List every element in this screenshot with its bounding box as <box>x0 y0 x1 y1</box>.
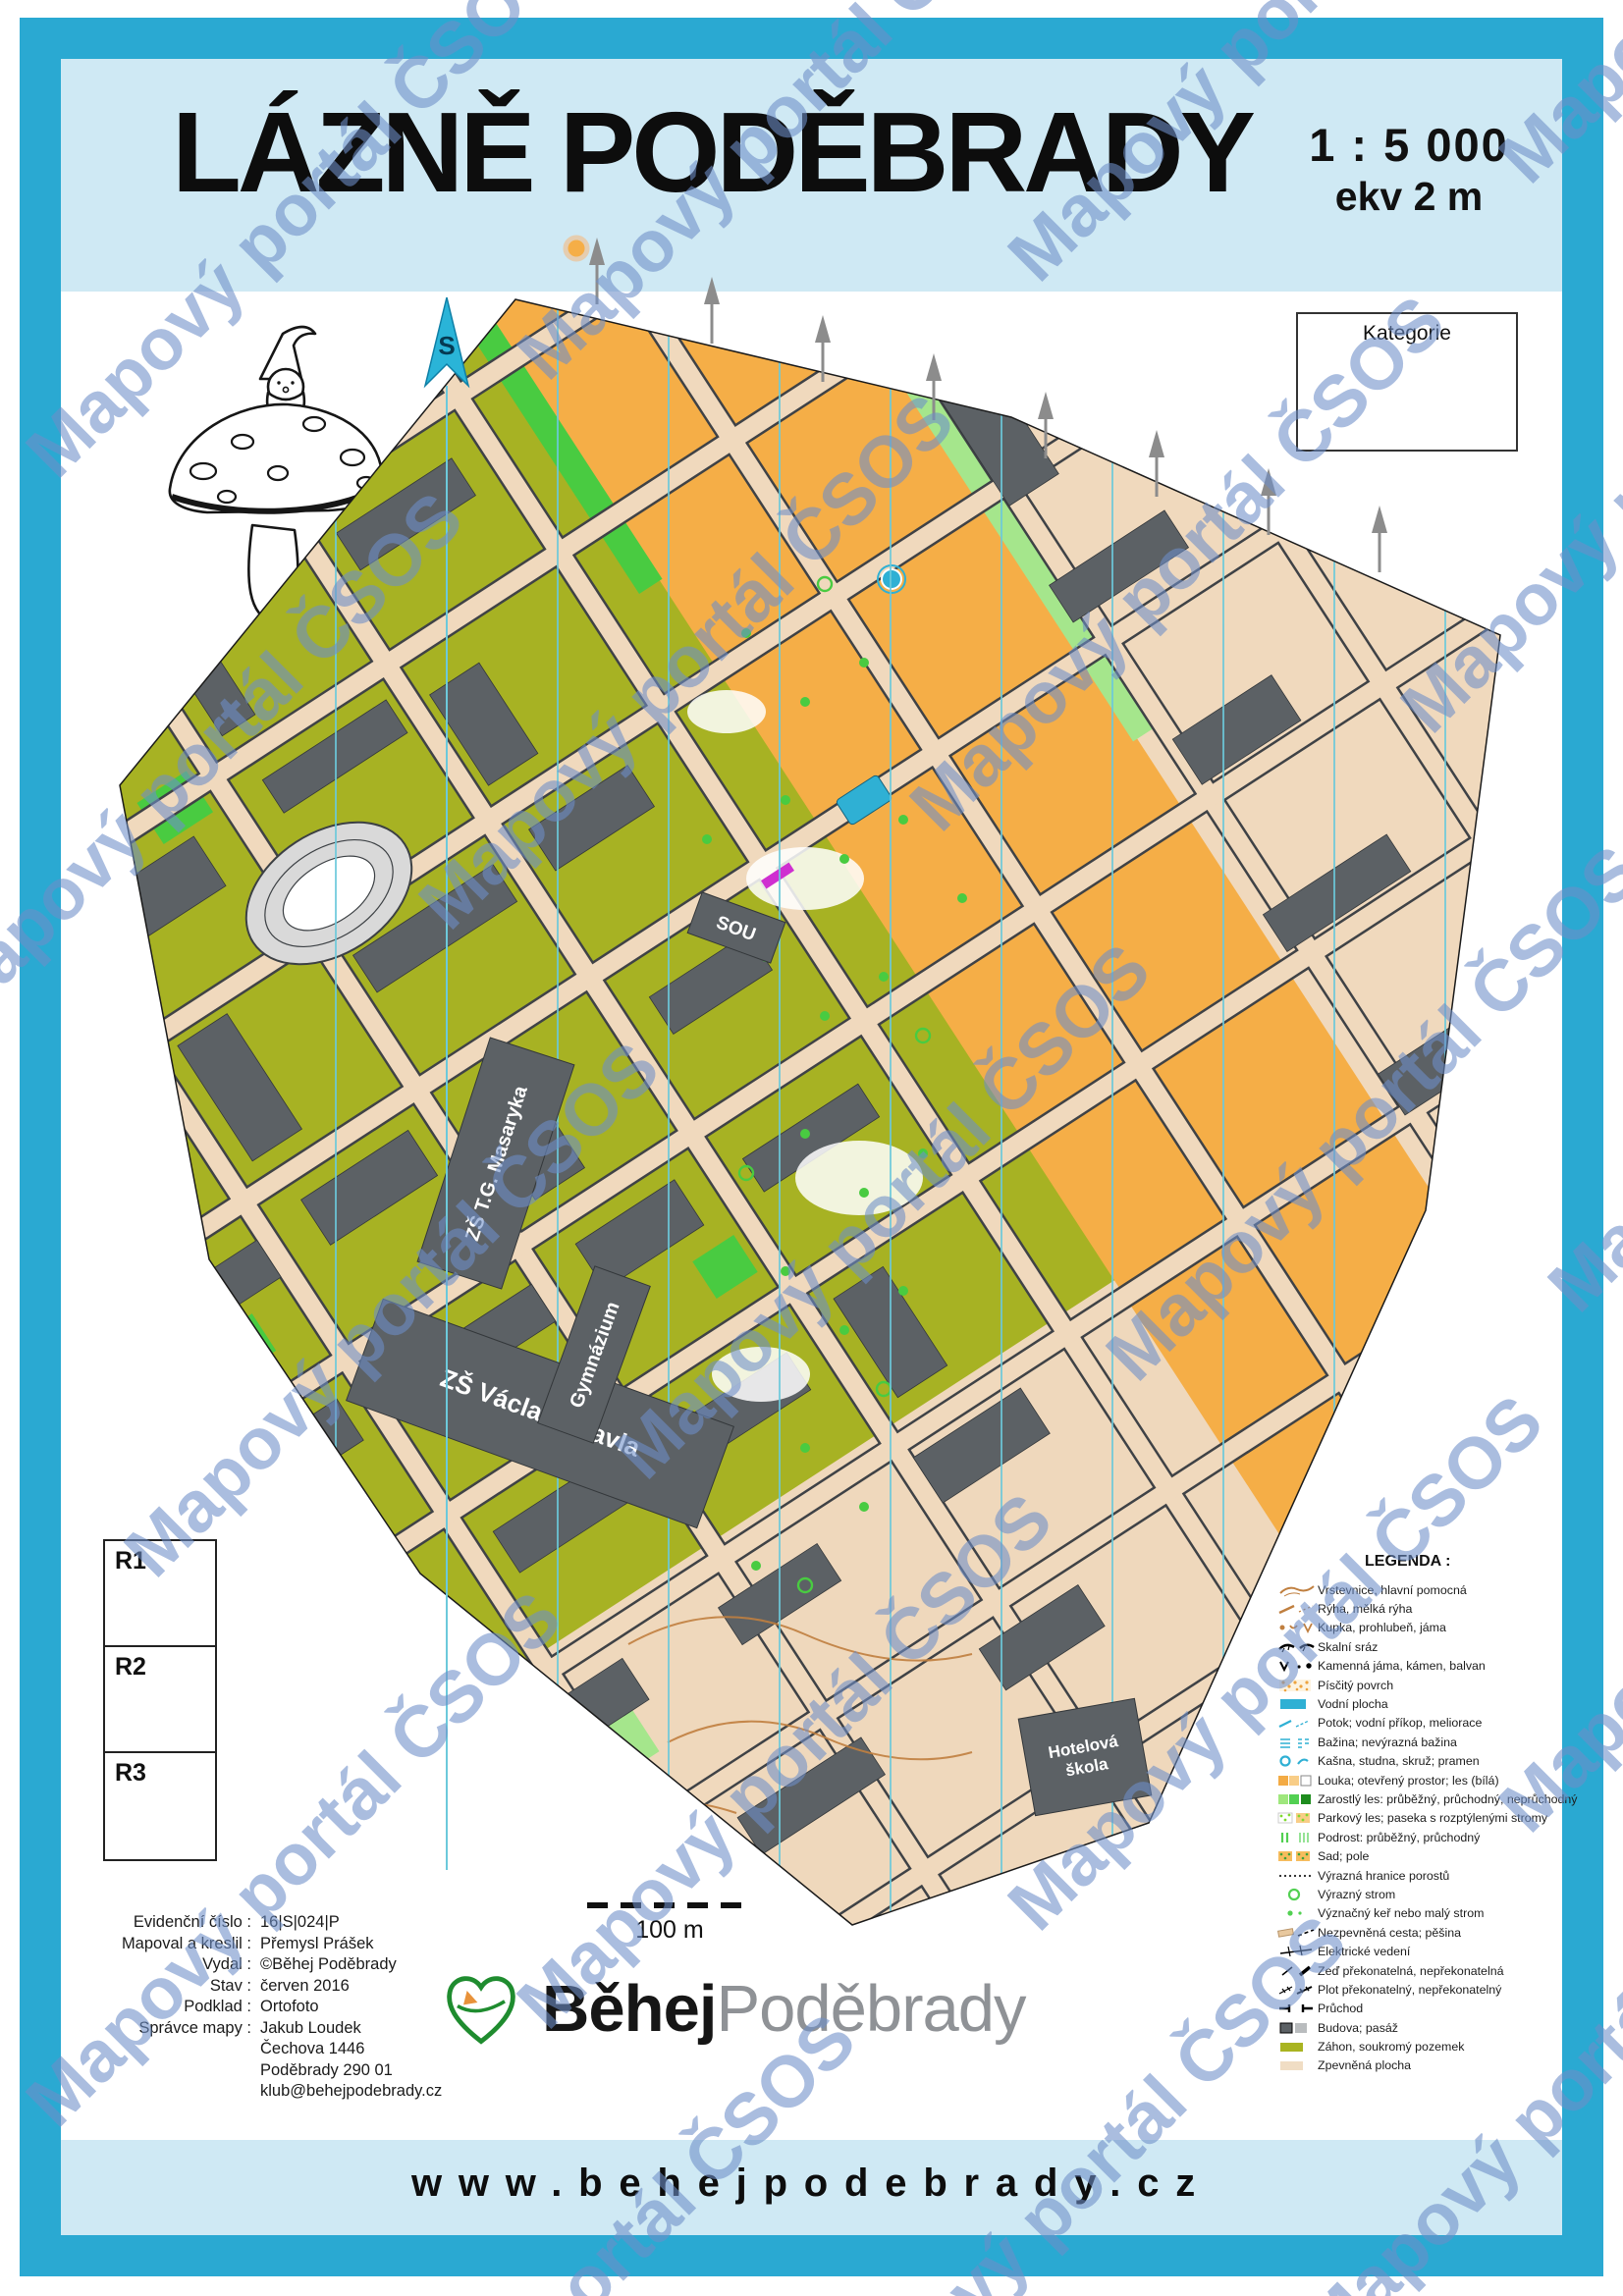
legend-item: Zpevněná plocha <box>1274 2056 1569 2075</box>
orienteering-map: ZŠ Václava Havla Gymnázium ZŠ T.G. Masar… <box>118 226 1502 1929</box>
credits-row: Stav :červen 2016 <box>84 1976 430 1998</box>
club-logo: Běhej Poděbrady <box>440 1967 1026 2050</box>
logo-word-podebrady: Poděbrady <box>716 1971 1025 2047</box>
legend-label: Zeď překonatelná, nepřekonatelná <box>1318 1964 1503 1978</box>
credits-email[interactable]: klub@behejpodebrady.cz <box>260 2081 442 2103</box>
credits-label: Stav : <box>84 1976 251 1998</box>
page-title: LÁZNĚ PODĚBRADY <box>172 86 1252 218</box>
credits-row: Podklad :Ortofoto <box>84 1997 430 2018</box>
legend-item: Budova; pasáž <box>1274 2018 1569 2037</box>
credits-value: ©Běhej Poděbrady <box>260 1954 397 1976</box>
credits-label: Správce mapy : <box>84 2018 251 2040</box>
credits-row: Správce mapy :Jakub Loudek <box>84 2018 430 2040</box>
legend-label: Záhon, soukromý pozemek <box>1318 2040 1464 2054</box>
credits-block: Evidenční číslo :16|S|024|PMapoval a kre… <box>84 1912 430 2103</box>
flowerbed-icon <box>1274 2039 1318 2055</box>
scale-block: 1 : 5 000 ekv 2 m <box>1267 118 1551 220</box>
heart-icon <box>440 1967 522 2050</box>
website-link[interactable]: www.behejpodebrady.cz <box>61 2162 1562 2206</box>
legend-label: Budova; pasáž <box>1318 2021 1398 2035</box>
credits-label <box>84 2039 251 2060</box>
building-icon <box>1274 2020 1318 2036</box>
credits-value: Ortofoto <box>260 1997 319 2018</box>
credits-value: Poděbrady 290 01 <box>260 2060 393 2082</box>
legend-item: Elektrické vedení <box>1274 1942 1569 1960</box>
credits-label <box>84 2081 251 2103</box>
credits-label: Vydal : <box>84 1954 251 1976</box>
paved-icon <box>1274 2057 1318 2073</box>
credits-value: Čechova 1446 <box>260 2039 364 2060</box>
north-arrow-label: S <box>438 331 455 360</box>
credits-rows: Evidenční číslo :16|S|024|PMapoval a kre… <box>84 1912 430 2103</box>
credits-row: Poděbrady 290 01 <box>84 2060 430 2082</box>
roundabout <box>566 238 587 259</box>
legend-label: Elektrické vedení <box>1318 1945 1410 1958</box>
legend-item: Záhon, soukromý pozemek <box>1274 2037 1569 2056</box>
credits-row: Čechova 1446 <box>84 2039 430 2060</box>
credits-value: Jakub Loudek <box>260 2018 361 2040</box>
legend-item: Zeď překonatelná, nepřekonatelná <box>1274 1961 1569 1980</box>
powerline-icon <box>1274 1944 1318 1959</box>
legend-item: Průchod <box>1274 2000 1569 2018</box>
fence-icon <box>1274 1982 1318 1998</box>
building-hotelova-skola: Hotelová škola <box>1018 1698 1152 1815</box>
logo-word-behej: Běhej <box>542 1971 716 2047</box>
legend-item: Plot překonatelný, nepřekonatelný <box>1274 1980 1569 1999</box>
credits-label <box>84 2060 251 2082</box>
credits-label: Podklad : <box>84 1997 251 2018</box>
map-scale: 1 : 5 000 <box>1267 118 1551 172</box>
credits-row: klub@behejpodebrady.cz <box>84 2081 430 2103</box>
map-sheet: LÁZNĚ PODĚBRADY 1 : 5 000 ekv 2 m <box>0 0 1623 2296</box>
credits-label: Mapoval a kreslil : <box>84 1934 251 1955</box>
street-grid <box>118 226 1502 1929</box>
credits-row: Mapoval a kreslil :Přemysl Prášek <box>84 1934 430 1955</box>
legend-label: Zpevněná plocha <box>1318 2058 1411 2072</box>
credits-value: červen 2016 <box>260 1976 350 1998</box>
passage-icon <box>1274 2001 1318 2016</box>
credits-row: Vydal :©Běhej Poděbrady <box>84 1954 430 1976</box>
map-area: ZŠ Václava Havla Gymnázium ZŠ T.G. Masar… <box>118 226 1502 1929</box>
contour-equidistance: ekv 2 m <box>1267 174 1551 220</box>
north-arrow: S <box>425 297 468 386</box>
wall-icon <box>1274 1963 1318 1979</box>
legend-label: Průchod <box>1318 2002 1363 2015</box>
legend-label: Plot překonatelný, nepřekonatelný <box>1318 1983 1501 1997</box>
credits-value: Přemysl Prášek <box>260 1934 374 1955</box>
